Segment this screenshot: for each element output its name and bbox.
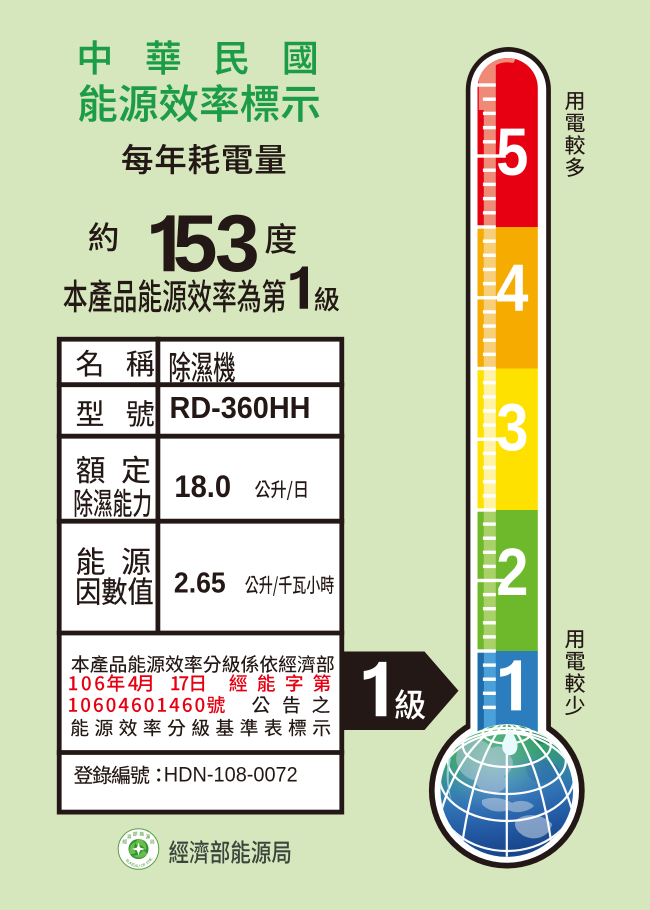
- svg-text:18.0: 18.0: [174, 470, 231, 504]
- svg-text:2.65: 2.65: [174, 567, 226, 599]
- svg-text:2: 2: [496, 536, 528, 610]
- svg-text:RD-360HH: RD-360HH: [170, 391, 311, 425]
- svg-text:HDN-108-0072: HDN-108-0072: [164, 763, 298, 787]
- svg-text:3: 3: [496, 392, 528, 466]
- svg-text:53: 53: [173, 199, 258, 289]
- svg-text:4: 4: [496, 252, 528, 326]
- svg-text:5: 5: [496, 116, 528, 190]
